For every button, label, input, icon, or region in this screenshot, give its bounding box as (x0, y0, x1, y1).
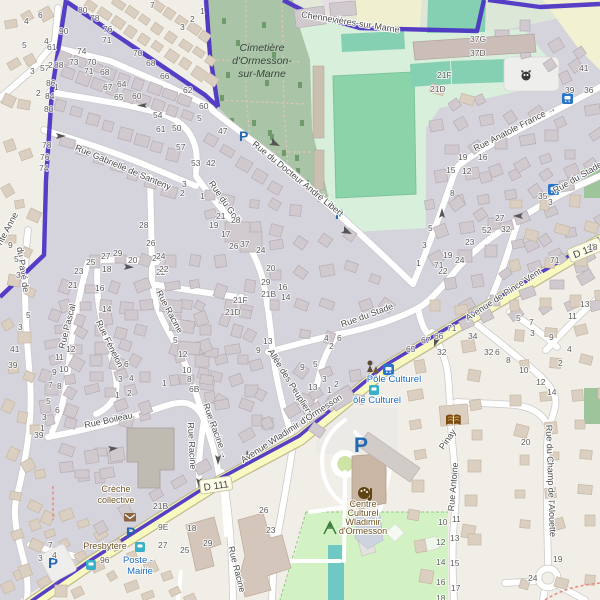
svg-text:16: 16 (478, 152, 488, 162)
svg-text:64: 64 (117, 79, 127, 89)
svg-text:Presbytère: Presbytère (83, 541, 127, 551)
svg-text:3: 3 (422, 240, 427, 250)
svg-text:61: 61 (156, 124, 166, 134)
svg-text:67: 67 (421, 335, 431, 345)
svg-text:1: 1 (54, 82, 59, 92)
svg-text:34: 34 (468, 331, 478, 341)
svg-text:39: 39 (8, 360, 18, 370)
svg-text:54: 54 (153, 110, 163, 120)
svg-text:10: 10 (59, 364, 69, 374)
svg-text:71: 71 (447, 323, 457, 333)
svg-text:2: 2 (180, 188, 185, 198)
svg-text:Crèche: Crèche (101, 484, 130, 494)
svg-text:19: 19 (553, 554, 563, 564)
svg-text:7: 7 (150, 0, 155, 10)
svg-text:7: 7 (529, 317, 534, 327)
svg-text:76: 76 (103, 24, 113, 34)
svg-text:21D: 21D (225, 307, 241, 317)
svg-text:28: 28 (139, 220, 149, 230)
svg-text:d'Ormesson: d'Ormesson (339, 526, 387, 536)
svg-text:4: 4 (52, 550, 57, 560)
svg-text:6: 6 (55, 405, 60, 415)
svg-text:78: 78 (90, 13, 100, 23)
svg-text:2: 2 (190, 14, 195, 24)
svg-text:62: 62 (183, 85, 193, 95)
svg-text:52: 52 (482, 225, 492, 235)
svg-text:3: 3 (16, 270, 21, 280)
svg-text:4: 4 (44, 36, 49, 46)
svg-text:P: P (239, 128, 248, 144)
svg-text:41: 41 (10, 344, 20, 354)
svg-text:26: 26 (259, 505, 269, 515)
svg-text:6: 6 (337, 333, 342, 343)
svg-text:90: 90 (59, 26, 69, 36)
svg-text:23: 23 (74, 266, 84, 276)
svg-text:41: 41 (579, 63, 589, 73)
svg-text:5: 5 (428, 223, 433, 233)
svg-text:2: 2 (36, 88, 41, 98)
svg-text:23: 23 (465, 237, 475, 247)
svg-text:4: 4 (129, 373, 134, 383)
svg-text:collective: collective (97, 495, 134, 505)
svg-text:16: 16 (278, 282, 288, 292)
svg-text:21D: 21D (430, 84, 446, 94)
svg-text:71: 71 (84, 66, 94, 76)
svg-text:5: 5 (197, 113, 202, 123)
svg-text:60: 60 (132, 91, 142, 101)
svg-text:7: 7 (48, 540, 53, 550)
svg-text:71: 71 (102, 35, 112, 45)
svg-text:18: 18 (102, 264, 112, 274)
svg-text:24: 24 (528, 573, 538, 583)
svg-text:9: 9 (549, 332, 554, 342)
svg-text:10: 10 (438, 517, 448, 527)
svg-text:19: 19 (443, 250, 453, 260)
svg-text:12: 12 (462, 166, 472, 176)
svg-text:17: 17 (221, 229, 231, 239)
svg-text:3: 3 (30, 66, 35, 76)
svg-text:66: 66 (160, 71, 170, 81)
svg-text:Poste -: Poste - (123, 555, 153, 566)
svg-text:2: 2 (48, 60, 53, 70)
svg-text:5: 5 (14, 254, 19, 264)
svg-text:13: 13 (263, 336, 273, 346)
svg-text:24: 24 (455, 255, 465, 265)
svg-text:Mairie: Mairie (127, 566, 153, 577)
svg-text:8: 8 (506, 355, 511, 365)
svg-text:3: 3 (180, 22, 185, 32)
svg-text:14: 14 (436, 557, 446, 567)
svg-text:Cimetière: Cimetière (240, 42, 285, 54)
svg-text:24: 24 (156, 251, 166, 261)
svg-text:12: 12 (178, 349, 188, 359)
svg-text:32: 32 (501, 224, 511, 234)
svg-text:1: 1 (162, 378, 167, 388)
svg-text:67: 67 (103, 82, 113, 92)
svg-text:3: 3 (38, 553, 43, 563)
svg-text:25: 25 (180, 545, 190, 555)
svg-text:1: 1 (327, 385, 332, 395)
svg-text:P: P (126, 524, 135, 540)
svg-text:73: 73 (69, 57, 79, 67)
svg-text:14: 14 (547, 387, 557, 397)
svg-text:42: 42 (206, 158, 216, 168)
svg-text:20: 20 (521, 437, 531, 447)
svg-text:ôle Culturel: ôle Culturel (353, 395, 401, 406)
svg-text:16: 16 (95, 283, 105, 293)
svg-text:88: 88 (54, 60, 64, 70)
svg-text:71: 71 (550, 255, 560, 265)
svg-text:68: 68 (100, 67, 110, 77)
svg-text:21F: 21F (437, 70, 452, 80)
svg-text:74: 74 (77, 46, 87, 56)
svg-text:25: 25 (86, 257, 96, 267)
svg-text:19: 19 (209, 220, 219, 230)
svg-text:15: 15 (450, 558, 460, 568)
svg-text:12: 12 (536, 377, 546, 387)
svg-text:37G: 37G (470, 34, 486, 44)
svg-text:2: 2 (127, 388, 132, 398)
svg-text:18: 18 (436, 593, 446, 600)
svg-text:84: 84 (45, 91, 55, 101)
svg-text:57: 57 (176, 142, 186, 152)
svg-text:28: 28 (231, 215, 241, 225)
svg-text:Pôle Culturel: Pôle Culturel (367, 374, 421, 385)
svg-text:71: 71 (434, 260, 444, 270)
svg-text:13: 13 (308, 382, 318, 392)
svg-text:13: 13 (580, 299, 590, 309)
svg-text:37: 37 (240, 239, 250, 249)
svg-text:5: 5 (26, 310, 31, 320)
svg-text:17: 17 (451, 583, 461, 593)
svg-text:76: 76 (40, 152, 50, 162)
svg-text:11: 11 (568, 311, 577, 321)
svg-text:d'Ormesson-: d'Ormesson- (232, 55, 292, 67)
svg-text:29: 29 (261, 277, 271, 287)
svg-text:3: 3 (118, 374, 123, 384)
svg-text:7: 7 (48, 380, 53, 390)
svg-text:39: 39 (565, 85, 575, 95)
svg-text:11: 11 (55, 352, 64, 362)
svg-text:sur-Marne: sur-Marne (238, 68, 286, 80)
svg-text:70: 70 (133, 48, 143, 58)
svg-text:20: 20 (128, 255, 138, 265)
svg-text:3: 3 (530, 328, 535, 338)
svg-text:2: 2 (558, 358, 563, 368)
svg-text:65: 65 (114, 92, 124, 102)
svg-text:96: 96 (100, 555, 110, 565)
svg-text:53: 53 (191, 158, 201, 168)
svg-text:5: 5 (22, 40, 27, 50)
svg-text:19: 19 (458, 152, 468, 162)
svg-text:21F: 21F (233, 295, 248, 305)
svg-text:6B: 6B (189, 384, 200, 394)
svg-text:1: 1 (200, 191, 205, 201)
svg-text:20: 20 (266, 263, 276, 273)
svg-text:27: 27 (158, 540, 168, 550)
svg-text:9: 9 (300, 362, 305, 372)
svg-text:12: 12 (436, 537, 446, 547)
svg-text:5: 5 (46, 396, 51, 406)
svg-text:50: 50 (172, 123, 182, 133)
svg-text:2: 2 (334, 379, 339, 389)
svg-text:15: 15 (446, 165, 456, 175)
svg-text:18: 18 (588, 242, 598, 252)
svg-text:4: 4 (567, 344, 572, 354)
svg-text:9: 9 (52, 367, 57, 377)
svg-text:5: 5 (173, 335, 178, 345)
svg-text:22: 22 (159, 264, 169, 274)
svg-text:P: P (354, 434, 368, 457)
svg-text:3: 3 (322, 374, 327, 384)
svg-text:65: 65 (406, 344, 416, 354)
svg-text:3: 3 (548, 197, 553, 207)
svg-text:26: 26 (229, 241, 239, 251)
svg-text:74: 74 (39, 163, 49, 173)
svg-text:10: 10 (519, 365, 529, 375)
svg-text:13: 13 (450, 533, 460, 543)
svg-text:8: 8 (57, 381, 62, 391)
svg-text:21B: 21B (153, 501, 168, 511)
svg-text:3: 3 (18, 322, 23, 332)
svg-text:5: 5 (313, 359, 318, 369)
svg-text:32: 32 (484, 347, 494, 357)
svg-text:6: 6 (38, 10, 43, 20)
svg-text:2: 2 (329, 341, 334, 351)
svg-text:4: 4 (24, 16, 29, 26)
svg-text:1: 1 (40, 423, 45, 433)
svg-text:3: 3 (42, 412, 47, 422)
svg-text:6: 6 (495, 347, 500, 357)
svg-text:27: 27 (495, 213, 505, 223)
svg-text:5: 5 (516, 313, 521, 323)
svg-text:14: 14 (281, 292, 291, 302)
svg-text:8: 8 (450, 188, 455, 198)
svg-text:8: 8 (187, 374, 192, 384)
svg-text:9: 9 (256, 345, 261, 355)
svg-text:80: 80 (44, 104, 54, 114)
svg-text:18: 18 (187, 523, 197, 533)
svg-text:80: 80 (78, 5, 88, 15)
svg-text:9E: 9E (158, 522, 169, 532)
svg-text:78: 78 (42, 140, 52, 150)
svg-text:66: 66 (434, 331, 444, 341)
svg-text:36: 36 (584, 85, 594, 95)
svg-text:32: 32 (437, 347, 447, 357)
svg-text:1: 1 (115, 390, 120, 400)
svg-text:29: 29 (113, 248, 123, 258)
svg-text:68: 68 (146, 58, 156, 68)
svg-text:12: 12 (66, 344, 76, 354)
svg-text:29: 29 (203, 538, 213, 548)
svg-text:11: 11 (452, 514, 461, 524)
svg-text:27: 27 (101, 251, 111, 261)
svg-text:14: 14 (102, 304, 112, 314)
svg-text:23: 23 (266, 525, 276, 535)
svg-text:21: 21 (68, 280, 78, 290)
svg-text:1: 1 (416, 258, 421, 268)
svg-text:24: 24 (256, 245, 266, 255)
svg-text:6: 6 (124, 359, 129, 369)
svg-text:21B: 21B (261, 289, 276, 299)
svg-text:9: 9 (8, 240, 13, 250)
svg-text:16: 16 (436, 577, 446, 587)
svg-text:26: 26 (146, 238, 156, 248)
svg-text:47: 47 (218, 126, 228, 136)
svg-text:37D: 37D (470, 48, 486, 58)
svg-text:60: 60 (199, 101, 209, 111)
svg-text:1: 1 (200, 6, 205, 16)
svg-text:35: 35 (538, 191, 548, 201)
